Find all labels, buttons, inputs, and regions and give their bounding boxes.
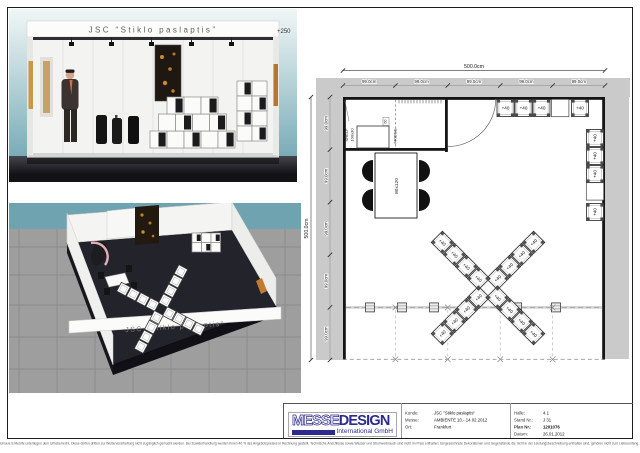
- artwork-panel: [135, 205, 159, 245]
- wall-post: [430, 303, 439, 312]
- artwork-left-wall: [29, 61, 34, 109]
- svg-text:99.0cm: 99.0cm: [324, 168, 329, 183]
- field-label: Halle:: [514, 410, 543, 417]
- logo-design: DESIGN: [339, 413, 390, 429]
- svg-text:99.0cm: 99.0cm: [362, 79, 377, 84]
- svg-text:99.0cm: 99.0cm: [324, 274, 329, 289]
- svg-text:+40: +40: [593, 208, 598, 216]
- svg-text:99.0cm: 99.0cm: [324, 326, 329, 341]
- footer-disclaimer: Unsere Entwürfe unterliegen dem Urheberr…: [0, 442, 640, 446]
- svg-text:+40: +40: [576, 106, 584, 111]
- svg-text:SHELF: SHELF: [344, 128, 349, 141]
- svg-text:+40: +40: [502, 106, 510, 111]
- display-shelf-unit: [237, 81, 267, 141]
- artwork-right-wall: [274, 64, 279, 106]
- svg-text:+40: +40: [593, 134, 598, 142]
- company-logo: MESSEDESIGN International GmbH: [288, 412, 397, 437]
- display-cube: +40: [587, 148, 604, 165]
- svg-text:99.0cm: 99.0cm: [572, 79, 587, 84]
- neighbor-walls: [316, 78, 630, 360]
- render-aerial-view: JSC “Stiklo paslaptis”: [9, 203, 301, 393]
- door-swing: [448, 99, 496, 147]
- display-cube: +40: [587, 204, 604, 221]
- svg-text:FRIDGE: FRIDGE: [393, 128, 398, 143]
- artwork-back-wall: [155, 45, 181, 101]
- display-cube: +40: [587, 166, 604, 183]
- booth-fascia-title: JSC “Stiklo paslaptis”: [89, 26, 218, 35]
- shelf-unit-aerial: [192, 233, 221, 252]
- fridge: [357, 126, 389, 148]
- field-value: 1201076: [543, 424, 560, 429]
- svg-text:60: 60: [383, 120, 387, 124]
- display-cube: +40: [572, 100, 589, 117]
- logo-bar: [292, 430, 335, 435]
- design-sheet: JSC “Stiklo paslaptis” +250: [0, 0, 640, 453]
- field-label: Plan Nr.:: [514, 424, 543, 431]
- meeting-furniture: [96, 112, 139, 144]
- titleblock-divider-1: [401, 403, 402, 438]
- field-label: Messe:: [405, 417, 434, 424]
- field-value: AMBIENTE 10.- 14.02.2012: [434, 417, 487, 422]
- fascia-height-label: +250: [277, 29, 291, 35]
- logo-subtitle: International GmbH: [337, 429, 393, 436]
- svg-text:500.0cm: 500.0cm: [464, 64, 484, 70]
- field-label: Datum:: [514, 431, 543, 438]
- svg-text:100x30: 100x30: [350, 128, 355, 142]
- wall-post: [366, 303, 375, 312]
- x-display: +40+40+40+40+40+40+40+40+40+40+40+40+40+…: [431, 231, 545, 345]
- svg-text:+40: +40: [538, 106, 546, 111]
- wall-post: [398, 303, 407, 312]
- svg-text:99.0cm: 99.0cm: [324, 116, 329, 131]
- field-value: JSC "Stiklo paslaptis": [434, 411, 475, 416]
- svg-text:99.0cm: 99.0cm: [324, 221, 329, 236]
- svg-text:99.0cm: 99.0cm: [414, 79, 429, 84]
- storeroom: SHELF100x3060FRIDGE: [344, 100, 441, 148]
- svg-text:+40: +40: [520, 106, 528, 111]
- field-value: Frankfurt: [434, 424, 451, 429]
- field-label: Ort:: [405, 424, 434, 431]
- field-value: 26.01.2012: [543, 431, 565, 436]
- display-cube: +40: [497, 100, 514, 117]
- field-value: J 31: [543, 417, 551, 422]
- titleblock-divider: [283, 403, 633, 404]
- cube-row-top: +40+40+40+40: [497, 99, 589, 116]
- svg-text:80x120: 80x120: [394, 178, 400, 194]
- cube-column-right: +40+40+40+40: [586, 130, 603, 221]
- floor-plan: 500.0cm500.0cm99.0cm99.0cm99.0cm99.0cm99…: [295, 55, 640, 405]
- field-label: Kunde:: [405, 410, 434, 417]
- display-cube: +40: [587, 130, 604, 147]
- display-cube: +40: [515, 100, 532, 117]
- table-group: 80x120: [362, 153, 430, 218]
- svg-text:+40: +40: [593, 170, 598, 178]
- svg-text:500.0cm: 500.0cm: [304, 219, 310, 239]
- render-front-view: JSC “Stiklo paslaptis” +250: [9, 9, 297, 182]
- svg-text:+40: +40: [593, 152, 598, 160]
- logo-messe: MESSE: [292, 413, 339, 429]
- svg-text:99.0cm: 99.0cm: [467, 79, 482, 84]
- titleblock-left-line: [283, 403, 284, 438]
- titleblock-plan-fields: Halle:4.1 Stand Nr.:J 31 Plan Nr.:120107…: [514, 410, 615, 453]
- field-label: Stand Nr.:: [514, 417, 543, 424]
- field-value: 4.1: [543, 411, 549, 416]
- person-figure: [62, 70, 79, 143]
- display-cube: +40: [533, 100, 550, 117]
- svg-text:99.0cm: 99.0cm: [519, 79, 534, 84]
